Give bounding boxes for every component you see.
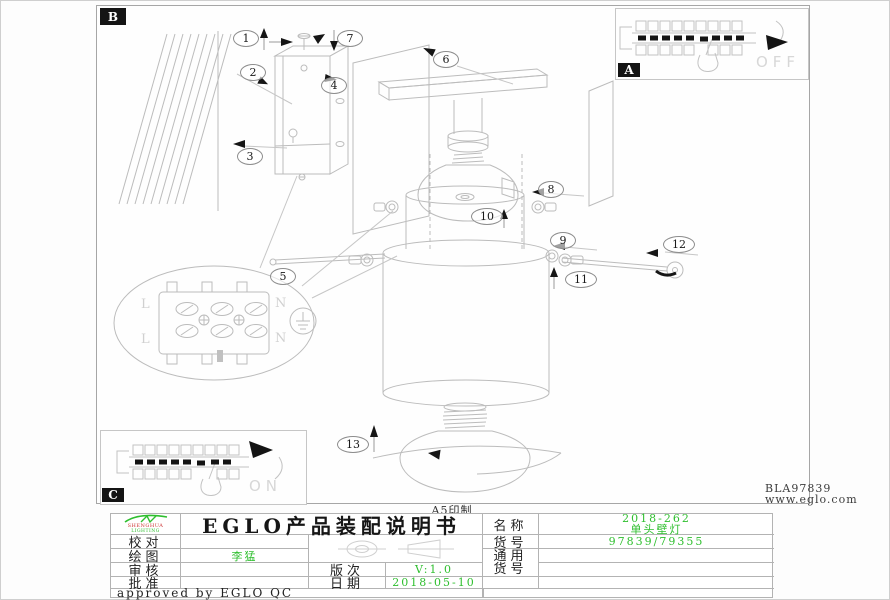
inset-switch-on: ON C xyxy=(100,430,307,505)
mounting-bracket xyxy=(275,34,348,181)
callout-7: 7 xyxy=(337,30,363,47)
section-label-a: A xyxy=(618,63,640,77)
date-label: 日期 xyxy=(309,577,386,589)
rotation-arc-2 xyxy=(477,453,561,474)
terminal-label-l2: L xyxy=(141,332,150,347)
empty-label-cell xyxy=(483,577,539,589)
hand-outline xyxy=(698,53,718,72)
terminal-letters: L N L N xyxy=(141,296,286,347)
empty-bottom-cell xyxy=(483,589,774,597)
callout-5: 5 xyxy=(270,268,296,285)
rotation-arc xyxy=(373,446,561,458)
name-value: 2018-262 单头壁灯 xyxy=(539,514,774,535)
on-arrow-icon xyxy=(249,441,273,458)
generic-item-value-1 xyxy=(539,549,774,563)
item-label: 货号 xyxy=(483,535,539,549)
assembly-instruction-sheet: L N L N xyxy=(0,0,890,600)
callout-8: 8 xyxy=(538,181,564,198)
off-arrow-icon xyxy=(766,35,788,50)
callout-2: 2 xyxy=(240,64,266,81)
projection-symbol xyxy=(309,535,483,563)
empty-value-cell xyxy=(539,577,774,589)
inset-switch-off: OFF A xyxy=(615,8,809,80)
callout-4: 4 xyxy=(321,77,347,94)
terminal-label-l1: L xyxy=(141,297,150,312)
terminal-label-n1: N xyxy=(275,296,286,311)
title-block: SHENGHUA LIGHTING 校对 绘图 审核 批准 EGLO产品装配说明… xyxy=(110,513,773,598)
earth-symbol xyxy=(290,308,316,334)
wall-hatching xyxy=(119,31,231,211)
callout-10: 10 xyxy=(471,208,503,225)
assembly-diagram: L N L N xyxy=(97,6,809,503)
review-value xyxy=(181,563,309,577)
name-value-line2: 单头壁灯 xyxy=(631,524,683,535)
date-value: 2018-05-10 xyxy=(386,577,483,589)
off-word: OFF xyxy=(756,53,800,71)
terminal-label-n2: N xyxy=(275,331,286,346)
hand-outline xyxy=(201,477,221,496)
callout-9: 9 xyxy=(550,232,576,249)
callout-13: 13 xyxy=(337,436,369,453)
section-label-b: B xyxy=(100,8,126,25)
on-dashes xyxy=(135,441,273,466)
item-value: 97839/79355 xyxy=(539,535,774,549)
callout-6: 6 xyxy=(433,51,459,68)
light-bulb xyxy=(373,403,561,492)
approved-note: approved by EGLO QC xyxy=(111,589,483,597)
document-title: EGLO产品装配说明书 xyxy=(181,514,483,535)
outer-shade xyxy=(349,240,583,406)
version-value: V:1.0 xyxy=(386,563,483,577)
generic-item-label: 通用 货号 xyxy=(483,549,539,577)
on-word: ON xyxy=(249,477,282,495)
leader-lines xyxy=(237,66,698,298)
generic-item-value-2 xyxy=(539,563,774,577)
draw-value: 李猛 xyxy=(181,549,309,563)
direction-arrows xyxy=(233,28,676,460)
callout-12: 12 xyxy=(663,236,695,253)
callout-11: 11 xyxy=(565,271,597,288)
section-label-c: C xyxy=(102,488,124,502)
callout-1: 1 xyxy=(233,30,259,47)
callout-3: 3 xyxy=(237,148,263,165)
